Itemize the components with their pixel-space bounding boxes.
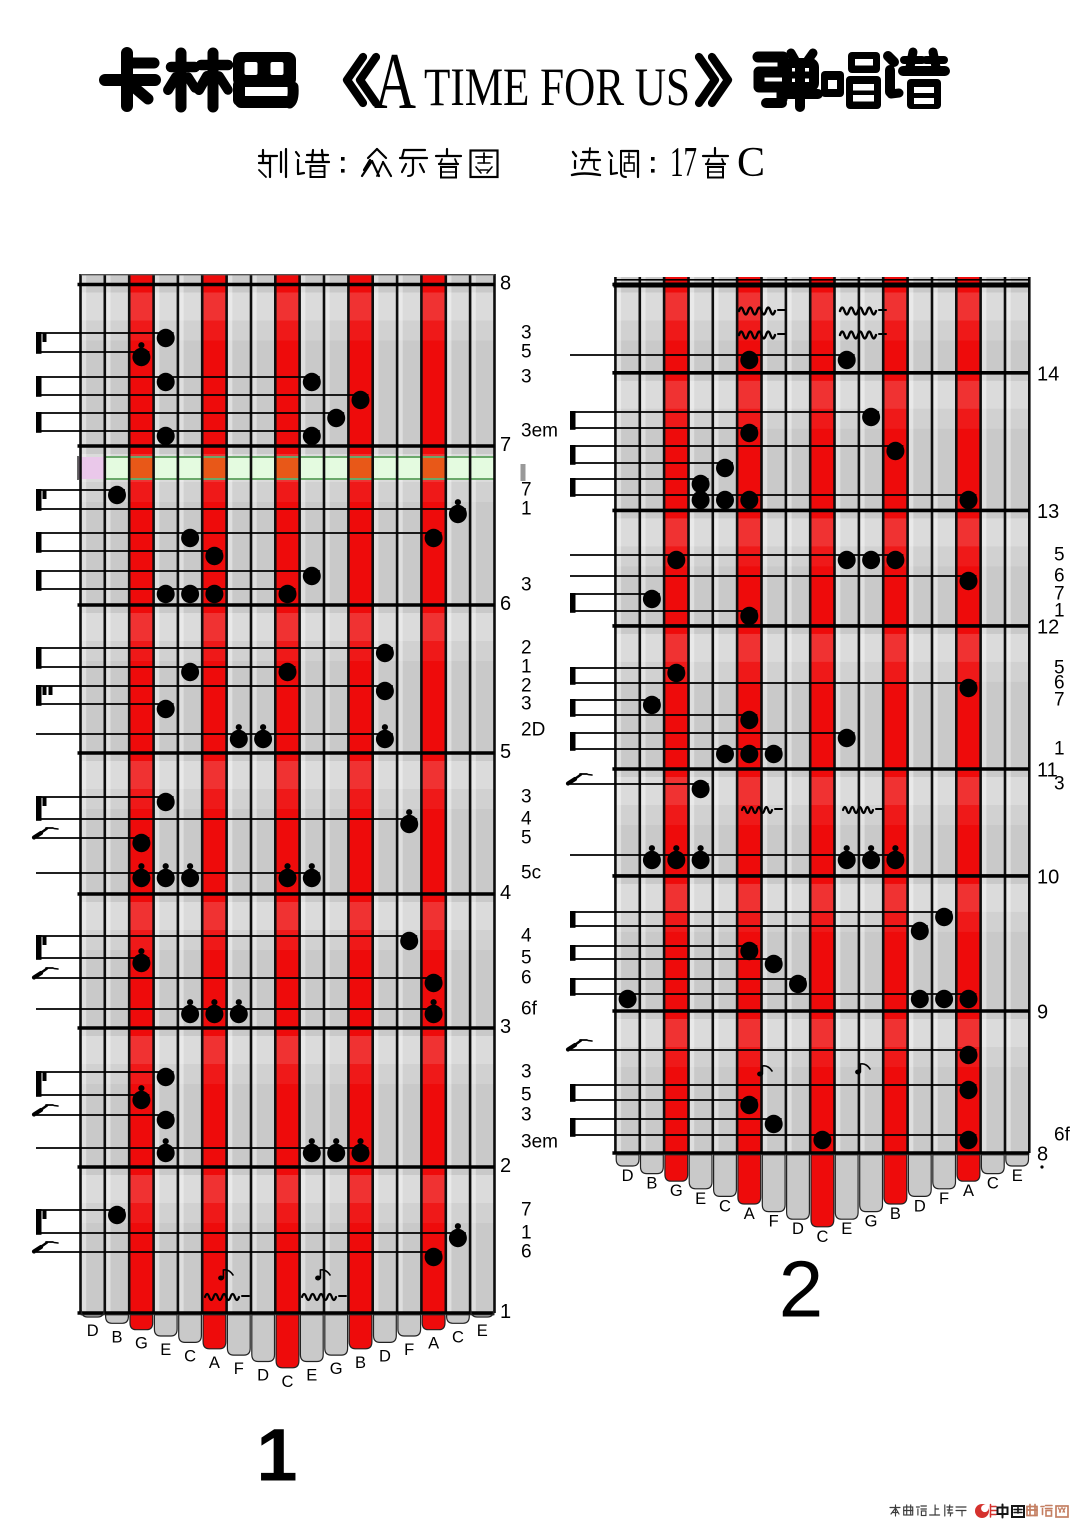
- svg-text:B: B: [646, 1175, 657, 1193]
- svg-text:9: 9: [1037, 1002, 1048, 1024]
- svg-text:1: 1: [1054, 601, 1065, 622]
- svg-text:7: 7: [521, 1200, 532, 1221]
- svg-text:4: 4: [521, 926, 532, 947]
- svg-text:C: C: [184, 1347, 196, 1365]
- svg-text:13: 13: [1037, 501, 1059, 523]
- svg-text:E: E: [1012, 1167, 1023, 1185]
- svg-text:G: G: [135, 1335, 148, 1353]
- svg-text:C: C: [816, 1228, 828, 1246]
- svg-text:F: F: [234, 1360, 244, 1378]
- svg-text:3: 3: [521, 323, 532, 344]
- svg-text:1: 1: [521, 499, 532, 520]
- svg-text:2: 2: [521, 638, 532, 659]
- svg-text:E: E: [477, 1322, 488, 1340]
- svg-text:E: E: [306, 1367, 317, 1385]
- svg-text:3: 3: [500, 1016, 511, 1038]
- svg-text:D: D: [792, 1220, 804, 1238]
- svg-text:TIME FOR US: TIME FOR US: [424, 57, 690, 117]
- svg-text:C: C: [282, 1373, 294, 1391]
- svg-text:D: D: [379, 1347, 391, 1365]
- svg-text:4: 4: [500, 882, 511, 904]
- svg-text:1: 1: [521, 657, 532, 678]
- svg-text:3: 3: [521, 1062, 532, 1083]
- svg-text:6: 6: [500, 593, 511, 615]
- svg-text:8: 8: [1037, 1144, 1048, 1166]
- svg-text:F: F: [939, 1190, 949, 1208]
- svg-text:3em: 3em: [521, 421, 558, 442]
- svg-text:B: B: [111, 1328, 122, 1346]
- svg-text:F: F: [769, 1213, 779, 1231]
- svg-text:5: 5: [1054, 545, 1065, 566]
- svg-text:3: 3: [521, 787, 532, 808]
- svg-text:1: 1: [500, 1301, 511, 1323]
- svg-text:D: D: [257, 1367, 269, 1385]
- svg-text:C: C: [737, 140, 765, 186]
- svg-text:D: D: [914, 1197, 926, 1215]
- svg-text:3: 3: [1054, 774, 1065, 795]
- svg-text:17: 17: [670, 140, 697, 186]
- svg-text:2D: 2D: [521, 720, 545, 741]
- svg-text:14: 14: [1037, 363, 1059, 385]
- svg-text:3: 3: [521, 1105, 532, 1126]
- svg-text:7: 7: [1054, 690, 1065, 711]
- svg-text:B: B: [890, 1205, 901, 1223]
- svg-text:E: E: [695, 1190, 706, 1208]
- svg-text:5: 5: [521, 342, 532, 363]
- svg-text:1: 1: [256, 1414, 297, 1497]
- svg-text:3em: 3em: [521, 1132, 558, 1153]
- svg-text:6f: 6f: [521, 999, 538, 1020]
- svg-text:3: 3: [521, 575, 532, 596]
- svg-text:G: G: [670, 1182, 683, 1200]
- svg-text:D: D: [87, 1322, 99, 1340]
- svg-text:A: A: [209, 1354, 220, 1372]
- svg-text:4: 4: [521, 809, 532, 830]
- svg-text:C: C: [719, 1197, 731, 1215]
- svg-text:D: D: [622, 1167, 634, 1185]
- svg-text:2: 2: [500, 1155, 511, 1177]
- svg-text:5: 5: [500, 741, 511, 763]
- svg-text:1: 1: [1054, 739, 1065, 760]
- svg-text:B: B: [355, 1354, 366, 1372]
- svg-text:A: A: [744, 1205, 755, 1223]
- svg-text:G: G: [865, 1213, 878, 1231]
- svg-text:F: F: [404, 1341, 414, 1359]
- svg-text:E: E: [160, 1341, 171, 1359]
- svg-text:5c: 5c: [521, 863, 541, 884]
- svg-text:C: C: [987, 1175, 999, 1193]
- svg-text:5: 5: [521, 1085, 532, 1106]
- svg-text:A: A: [428, 1335, 439, 1353]
- svg-text:7: 7: [521, 480, 532, 501]
- svg-text:10: 10: [1037, 866, 1059, 888]
- svg-text:3: 3: [521, 694, 532, 715]
- svg-text:A: A: [374, 38, 416, 126]
- svg-text:2: 2: [779, 1245, 824, 1334]
- svg-text:6: 6: [521, 1242, 532, 1263]
- svg-text:A: A: [963, 1182, 974, 1200]
- svg-text:3: 3: [521, 367, 532, 388]
- svg-text:6: 6: [521, 968, 532, 989]
- svg-text:E: E: [841, 1220, 852, 1238]
- svg-text:6f: 6f: [1054, 1125, 1071, 1146]
- svg-text:5: 5: [521, 828, 532, 849]
- svg-text:1: 1: [521, 1223, 532, 1244]
- svg-text:C: C: [452, 1328, 464, 1346]
- svg-text:7: 7: [500, 434, 511, 456]
- svg-text:G: G: [330, 1360, 343, 1378]
- svg-text:5: 5: [521, 948, 532, 969]
- svg-text:8: 8: [500, 273, 511, 295]
